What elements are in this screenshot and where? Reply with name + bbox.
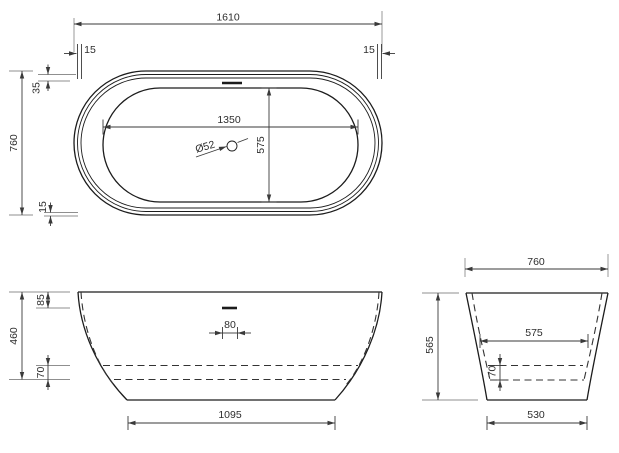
overflow-width-label: 80 [224,319,236,331]
front-height-label: 460 [8,327,20,345]
overall-width-label: 760 [8,134,20,152]
side-left-wall [466,293,487,400]
floor-offset-label: 70 [35,367,47,379]
bathtub-dimension-drawing: Ø52 1610 15 15 35 760 15 [0,0,619,453]
side-elevation: 760 565 575 70 530 [422,254,608,430]
plan-view: Ø52 1610 15 15 35 760 15 [8,11,395,226]
inner-width-label: 575 [255,136,267,154]
rim-bottom-label: 15 [37,201,49,213]
base-length-label: 1095 [218,409,242,421]
side-inner-width-label: 575 [525,327,543,339]
front-left-wall [78,292,127,400]
rim-offset-label: 35 [31,82,43,94]
front-inner-wall-hidden-right [346,292,379,385]
side-base-width-label: 530 [527,409,545,421]
front-inner-wall-hidden-left [81,292,114,385]
side-height-label: 565 [424,336,436,354]
drain-circle [227,141,237,151]
overall-length-label: 1610 [216,12,240,24]
technical-drawing-page: Ø52 1610 15 15 35 760 15 [0,0,619,453]
front-right-wall [335,292,382,400]
side-top-width-label: 760 [527,256,545,268]
rim-left-label: 15 [84,44,96,56]
drain-diameter-label: Ø52 [194,139,217,156]
inner-length-label: 1350 [217,114,241,126]
drain-leader-tail [238,139,249,143]
side-floor-offset-label: 70 [487,366,499,378]
side-right-wall [587,293,608,400]
rim-height-label: 85 [35,294,47,306]
tub-basin-outline [103,88,358,202]
rim-right-label: 15 [363,44,375,56]
front-elevation: 80 460 85 70 1095 [8,292,382,430]
